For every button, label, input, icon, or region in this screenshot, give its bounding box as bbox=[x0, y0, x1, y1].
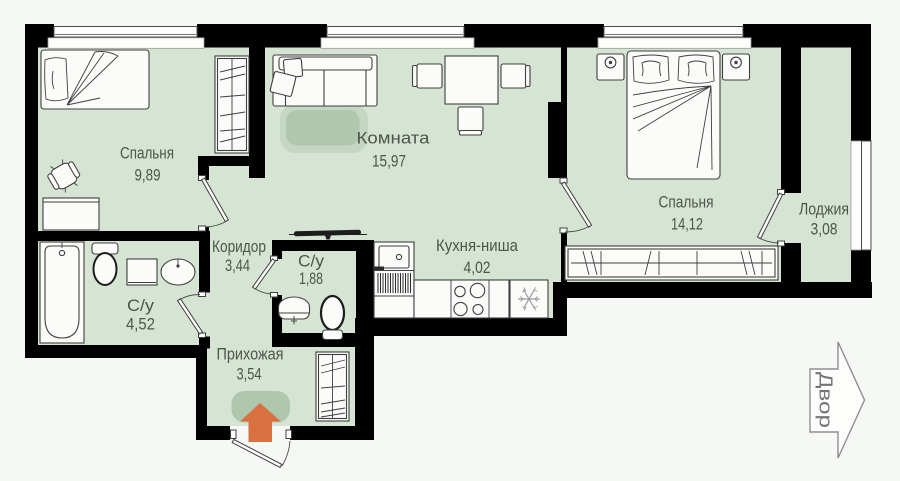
svg-text:4,02: 4,02 bbox=[464, 258, 491, 277]
svg-text:Коридор: Коридор bbox=[212, 237, 266, 256]
svg-text:15,97: 15,97 bbox=[372, 152, 406, 171]
svg-text:4,52: 4,52 bbox=[126, 315, 155, 334]
svg-text:3,44: 3,44 bbox=[225, 256, 250, 275]
svg-text:С/у: С/у bbox=[127, 296, 155, 315]
svg-text:3,54: 3,54 bbox=[237, 365, 262, 384]
svg-text:Спальня: Спальня bbox=[120, 144, 174, 163]
svg-text:9,89: 9,89 bbox=[135, 166, 161, 185]
svg-text:3,08: 3,08 bbox=[811, 220, 838, 239]
svg-text:Спальня: Спальня bbox=[659, 193, 714, 212]
svg-text:Прихожая: Прихожая bbox=[217, 345, 284, 364]
svg-text:Комната: Комната bbox=[357, 129, 431, 148]
svg-text:Двор: Двор bbox=[816, 372, 836, 428]
svg-text:С/у: С/у bbox=[298, 252, 325, 271]
svg-text:14,12: 14,12 bbox=[671, 215, 703, 234]
svg-text:1,88: 1,88 bbox=[299, 269, 323, 288]
svg-text:Лоджия: Лоджия bbox=[799, 200, 849, 219]
svg-text:Кухня-ниша: Кухня-ниша bbox=[436, 236, 518, 255]
